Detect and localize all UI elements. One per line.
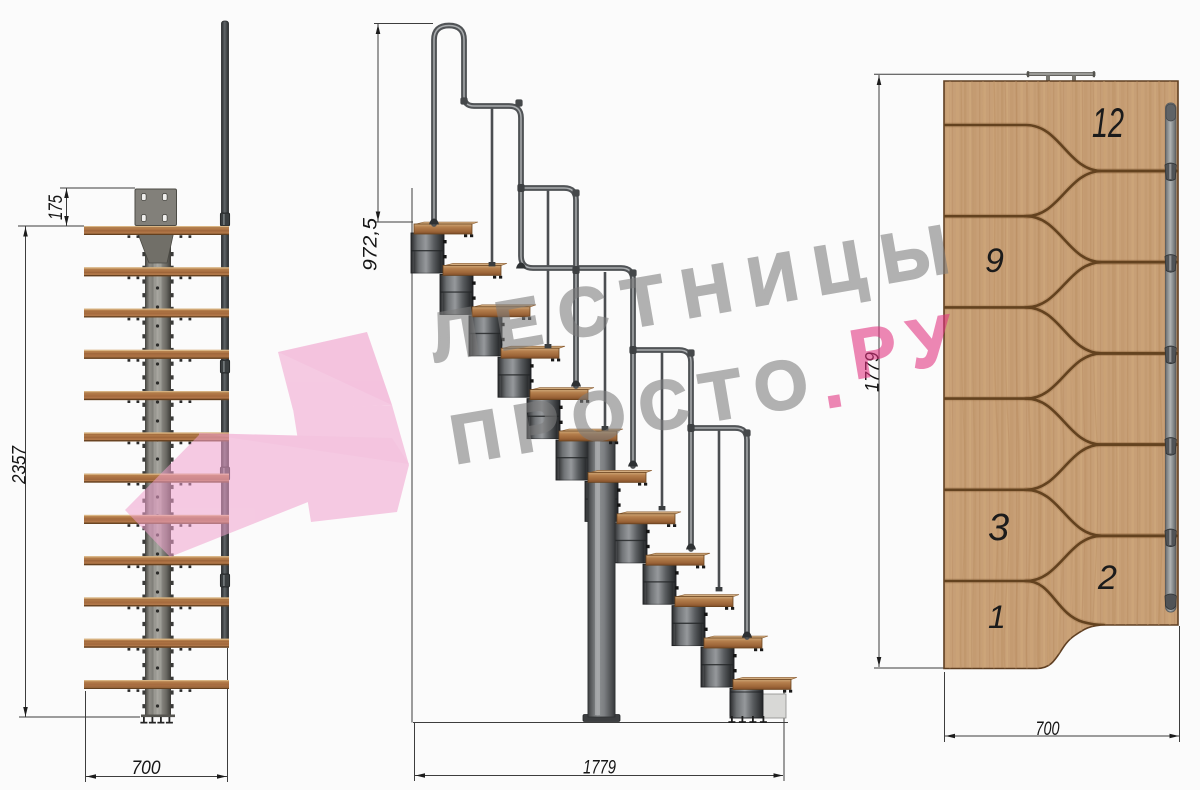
- svg-text:1: 1: [988, 599, 1006, 635]
- svg-text:972,5: 972,5: [361, 218, 382, 271]
- svg-text:700: 700: [1036, 719, 1060, 740]
- svg-text:2: 2: [1097, 559, 1117, 597]
- svg-text:3: 3: [988, 507, 1009, 549]
- svg-text:9: 9: [985, 242, 1004, 280]
- svg-text:2357: 2357: [10, 445, 31, 485]
- svg-text:1779: 1779: [583, 758, 616, 779]
- svg-text:12: 12: [1092, 99, 1124, 146]
- svg-text:700: 700: [132, 758, 161, 779]
- svg-text:175: 175: [46, 195, 67, 220]
